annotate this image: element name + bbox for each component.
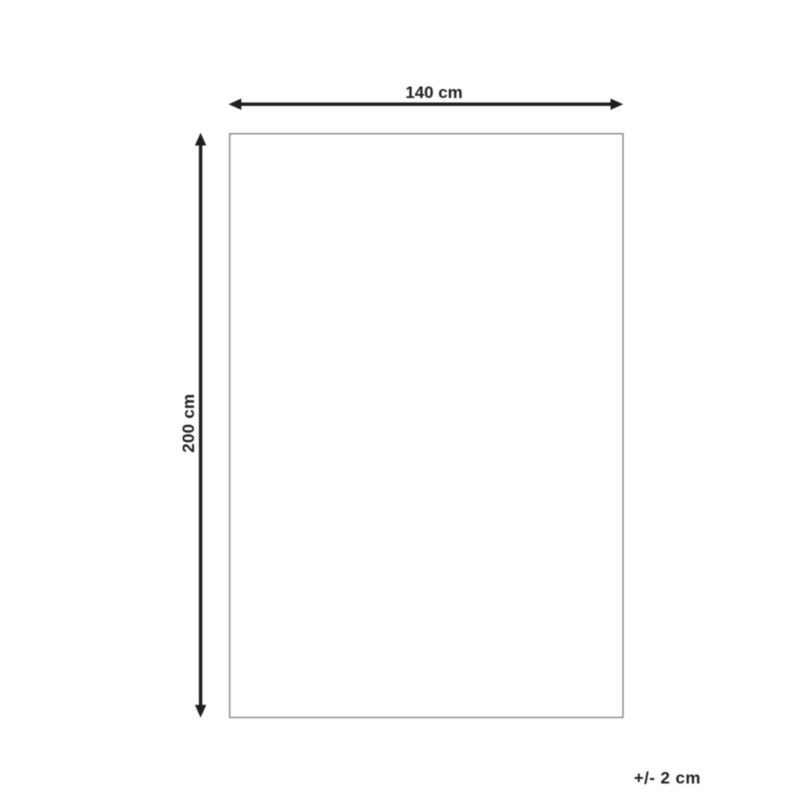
svg-text:+/- 2 cm: +/- 2 cm <box>634 769 701 788</box>
svg-text:200 cm: 200 cm <box>179 394 198 453</box>
svg-text:140 cm: 140 cm <box>405 83 462 102</box>
